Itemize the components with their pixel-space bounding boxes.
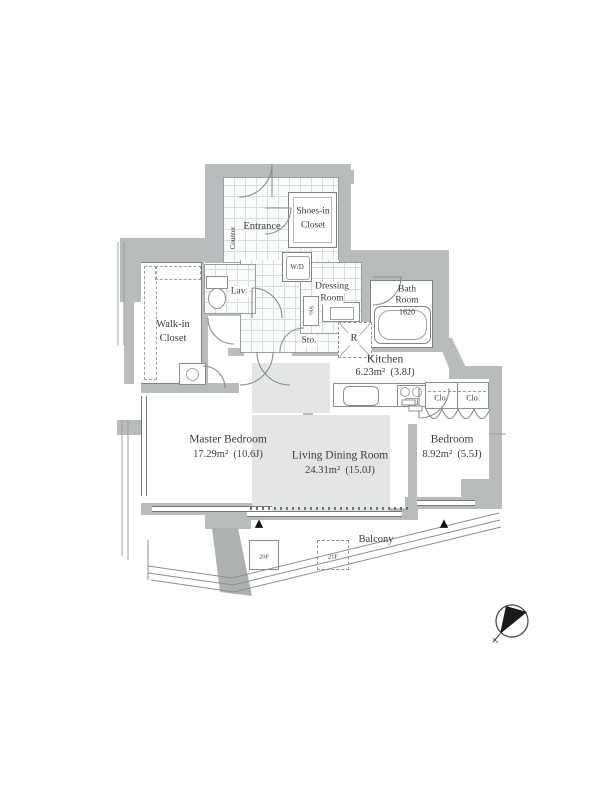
living-dining-area: 24.31m² (15.0J): [305, 465, 375, 477]
closet-fold-door: [474, 409, 490, 419]
compass-icon: [493, 605, 528, 643]
counter-label: Counter: [229, 227, 237, 250]
floor-box-21f-label: 21F: [328, 553, 338, 560]
entrance-door: [239, 164, 272, 197]
refrigerator-label: R: [348, 333, 359, 345]
ldk-door-left: [240, 352, 273, 385]
linework-layer: [0, 0, 600, 800]
master-bedroom-door: [203, 366, 225, 388]
walk-in-closet-label-2: Closet: [160, 333, 187, 345]
exterior-lines: [118, 242, 506, 560]
bath-room-label-1: Bath: [398, 285, 416, 296]
closet-fold-door: [458, 409, 474, 419]
shoes-closet-label-2: Closet: [301, 221, 325, 232]
closet-right-label: Clo.: [466, 393, 480, 402]
floor-plan: Entrance Counter Shoes-in Closet W/D Dre…: [0, 0, 600, 800]
bath-room-label-2: Room: [395, 296, 418, 307]
walk-in-closet-door: [208, 318, 234, 344]
bedroom-area: 8.92m² (5.5J): [422, 449, 481, 461]
master-bedroom-area: 17.29m² (10.6J): [193, 449, 263, 461]
closet-fold-door: [442, 409, 458, 419]
balcony-access-marker: ▲: [255, 517, 263, 530]
floor-box-20f-label: 20F: [259, 553, 269, 560]
walk-in-closet-label-1: Walk-in: [156, 319, 190, 331]
master-bedroom-name: Master Bedroom: [189, 433, 267, 446]
kitchen-area: 6.23m² (3.8J): [355, 367, 414, 379]
balcony-label: Balcony: [359, 534, 394, 546]
storage-small-label: Sto.: [307, 306, 314, 316]
wd-label: W/D: [289, 263, 305, 271]
bath-room-size: 1620: [399, 307, 415, 316]
lavatory-label: Lav.: [230, 287, 249, 298]
living-dining-name: Living Dining Room: [292, 449, 388, 462]
closet-left-label: Clo.: [434, 393, 448, 402]
kitchen-name: Kitchen: [367, 353, 403, 366]
dressing-room-label-2: Room: [320, 294, 343, 305]
balcony-access-marker: ▲: [440, 517, 448, 530]
storage-label: Sto.: [300, 336, 317, 347]
ldk-door-right: [257, 352, 290, 385]
shoes-closet-label-1: Shoes-in: [296, 207, 329, 218]
entrance-label: Entrance: [243, 221, 280, 233]
lavatory-door: [252, 288, 282, 318]
bedroom-name: Bedroom: [431, 433, 474, 446]
dressing-room-label-1: Dressing: [315, 282, 349, 293]
